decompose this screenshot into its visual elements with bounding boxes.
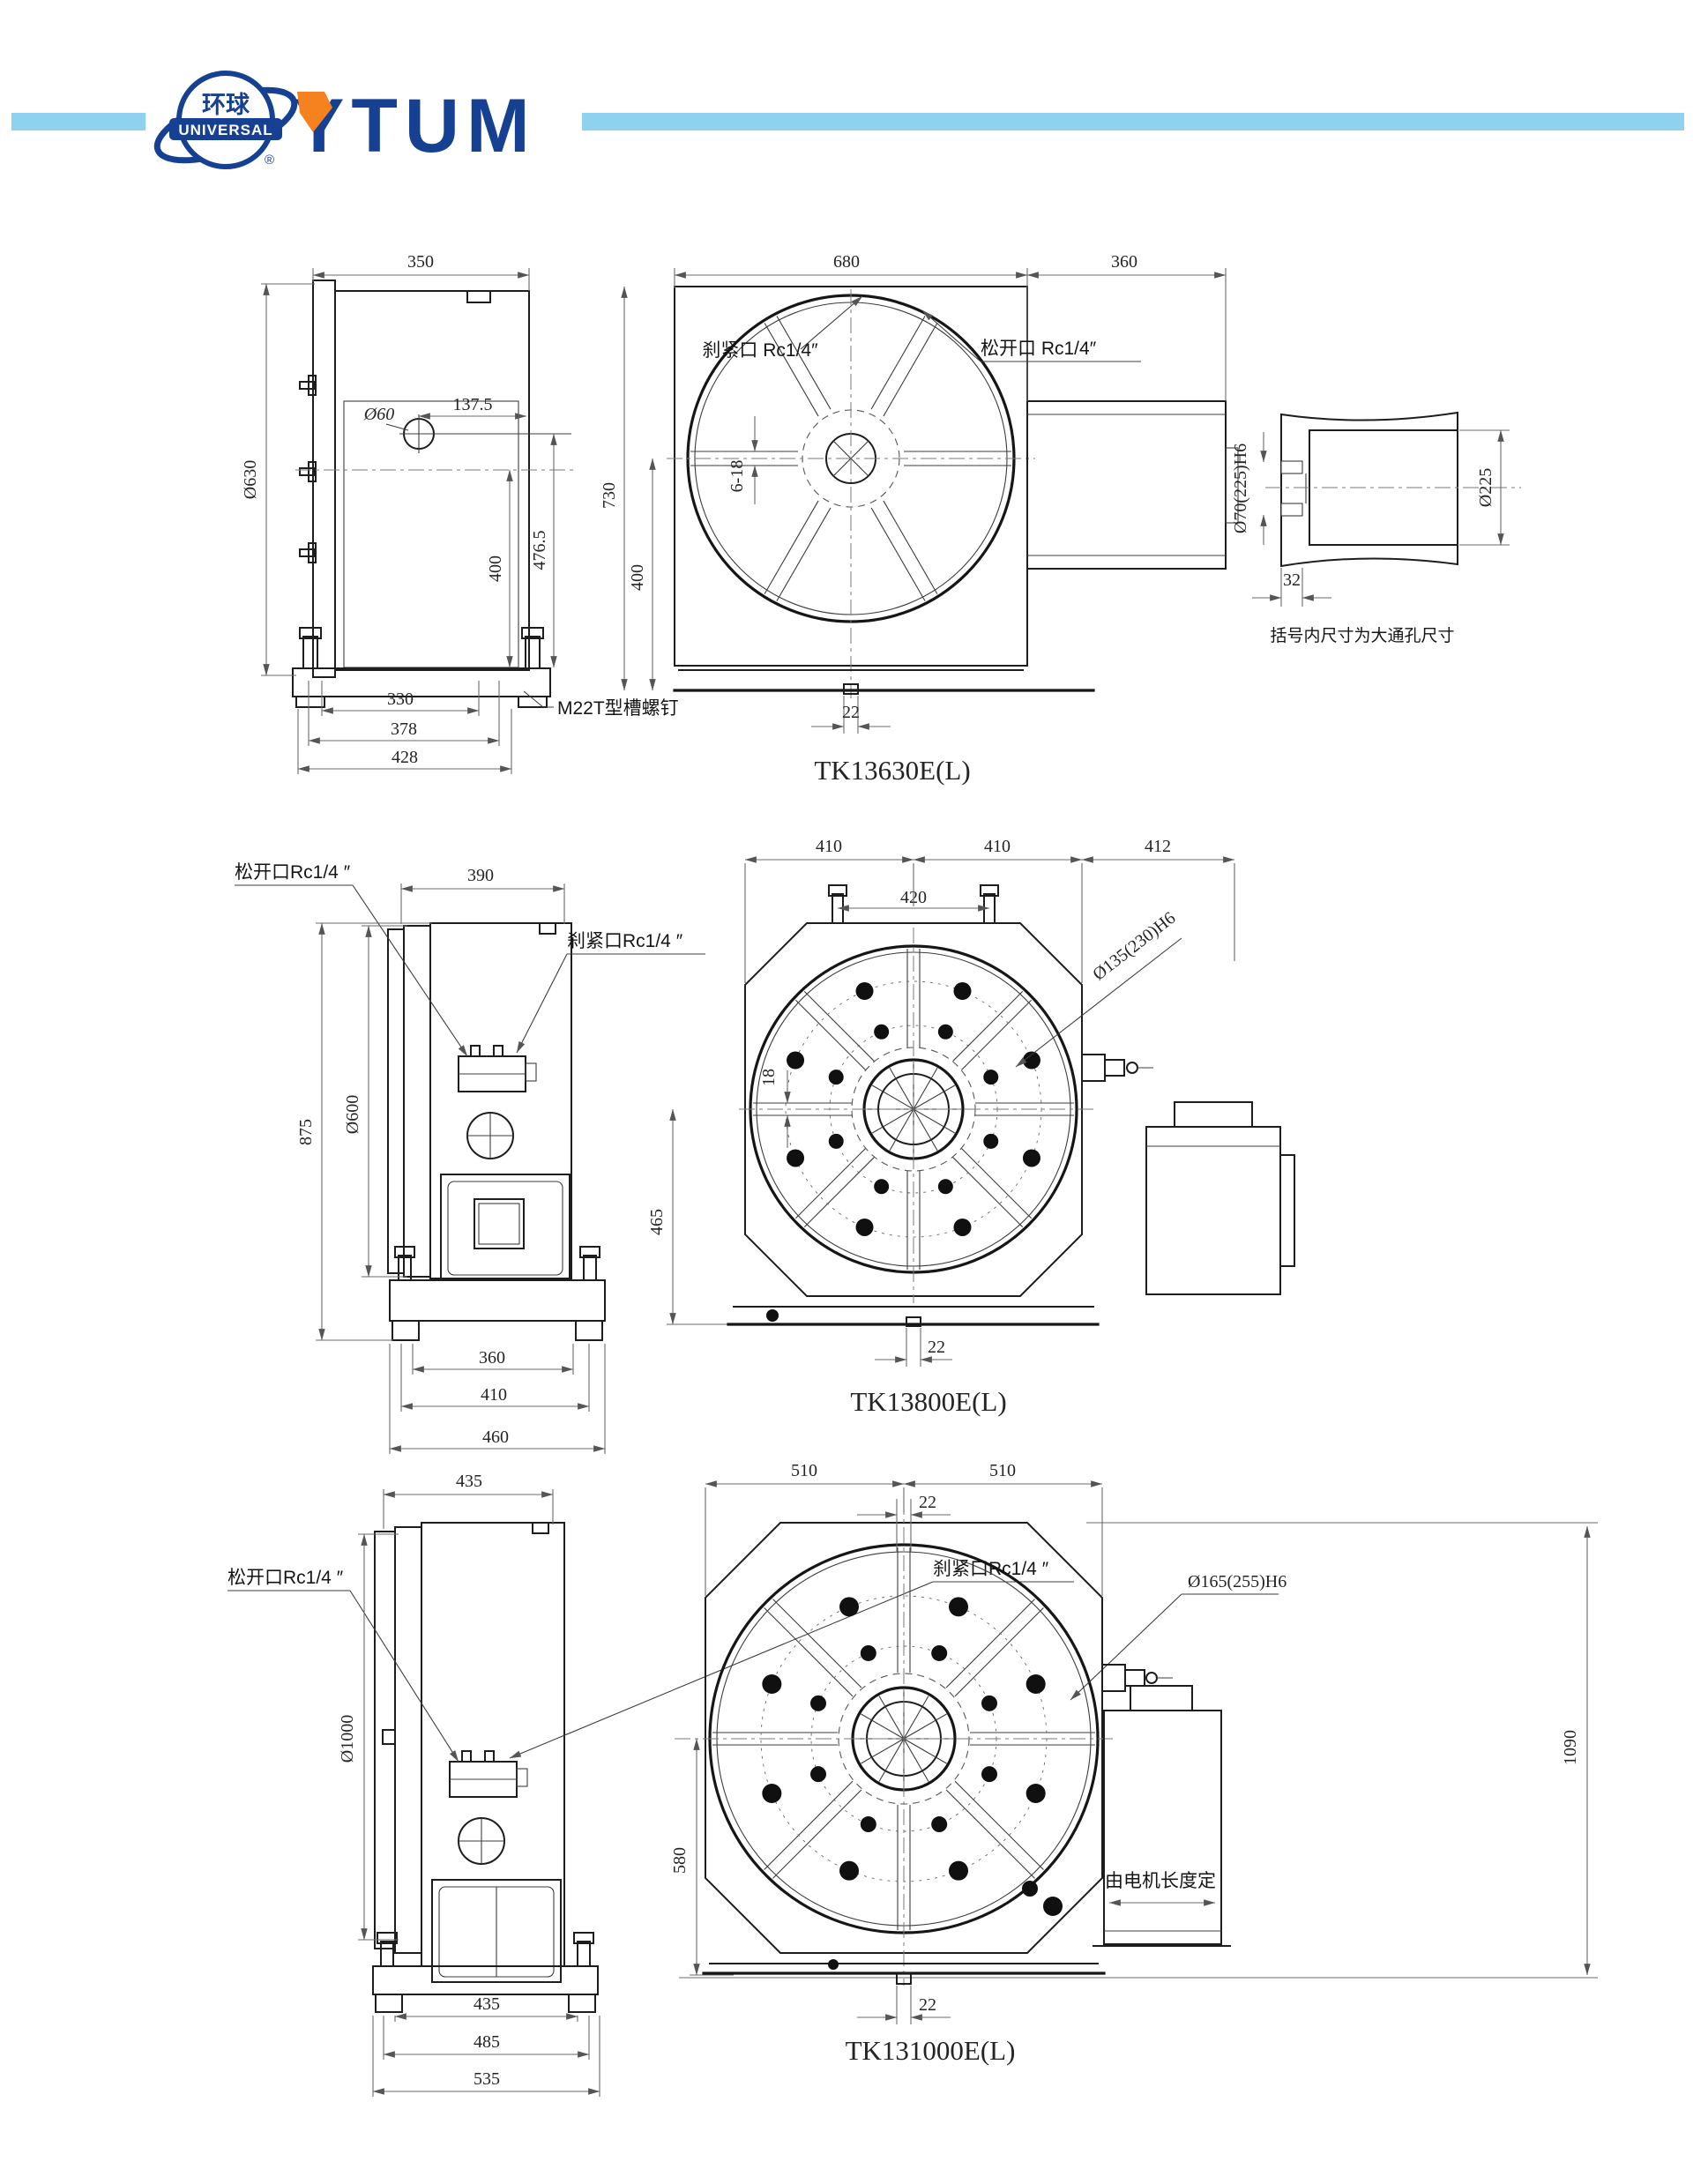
dim-side-h400: 400 — [486, 555, 505, 582]
dim-510b: 510 — [989, 1461, 1016, 1480]
dim-510a: 510 — [791, 1461, 817, 1480]
dim-slot-18: 18 — [759, 1069, 779, 1086]
dim-base-428: 428 — [392, 748, 418, 767]
dim-slot-6-18: 6-18 — [727, 460, 747, 493]
dim-side-390: 390 — [467, 866, 494, 885]
dim-base-435: 435 — [474, 1994, 500, 2014]
dim-base-485: 485 — [474, 2032, 500, 2052]
dim-front-730: 730 — [600, 482, 619, 509]
dim-1090: 1090 — [1561, 1730, 1580, 1765]
drawing-sheet: 环球 UNIVERSAL ® YTUM — [0, 0, 1693, 2184]
dim-580: 580 — [670, 1847, 690, 1874]
dim-front-400: 400 — [628, 564, 647, 591]
tk13630-bore-detail: Ø70(225)H6 Ø225 32 括号内尺寸为大通孔尺寸 — [1231, 413, 1521, 645]
accent-bar-right — [582, 113, 1684, 130]
page-header: 环球 UNIVERSAL ® YTUM — [11, 73, 1684, 175]
dim-side-h476: 476.5 — [530, 531, 549, 570]
dim-key-22-tk13800: 22 — [928, 1338, 945, 1357]
dim-depth-32: 32 — [1283, 570, 1301, 590]
label-clamp-port-3: 刹紧口Rc1/4 ″ — [933, 1559, 1049, 1579]
tk13800-side-view: 390 松开口Rc1/4 ″ 刹紧口Rc1/4 ″ 875 Ø600 360 4… — [235, 862, 705, 1454]
dim-bore-tk13800: Ø135(230)H6 — [1089, 908, 1179, 984]
dim-front-360: 360 — [1111, 252, 1137, 272]
accent-bar-left — [11, 113, 145, 130]
label-motor-length: 由电机长度定 — [1105, 1871, 1216, 1891]
label-release-port-3: 松开口Rc1/4 ″ — [227, 1568, 344, 1588]
dim-side-top-width: 350 — [407, 252, 434, 272]
wordmark-text: YTUM — [294, 84, 537, 168]
dim-410b: 410 — [984, 837, 1011, 856]
dim-412: 412 — [1145, 837, 1171, 856]
dim-side-435: 435 — [456, 1472, 482, 1491]
tk13800-front-view: 420 410 410 412 Ø135(230)H6 18 — [647, 837, 1294, 1417]
universal-globe-logo: 环球 UNIVERSAL ® — [149, 73, 303, 175]
note-parentheses: 括号内尺寸为大通孔尺寸 — [1270, 626, 1454, 645]
registered-mark-icon: ® — [265, 153, 274, 168]
label-hole-dia: Ø60 — [363, 405, 394, 424]
logo-universal-text: UNIVERSAL — [178, 122, 272, 138]
dim-bore-tk131000: Ø165(255)H6 — [1188, 1572, 1287, 1591]
ytum-wordmark: YTUM — [294, 84, 537, 168]
dim-base-330: 330 — [387, 689, 414, 709]
tk131000-front-view: 22 510 510 Ø165(255)H6 由电机长度定 — [670, 1461, 1598, 2066]
model-label-tk13800: TK13800E(L) — [850, 1386, 1006, 1417]
drawing-tk131000: 435 松开口Rc1/4 ″ 刹紧口Rc1/4 ″ Ø1000 435 485 … — [227, 1461, 1598, 2097]
catalog-page: 环球 UNIVERSAL ® YTUM — [0, 0, 1693, 2184]
dim-key-22: 22 — [842, 703, 860, 722]
model-label-tk131000: TK131000E(L) — [846, 2035, 1016, 2066]
label-clamp-port: 刹紧口 Rc1/4″ — [702, 340, 818, 361]
dim-front-680: 680 — [833, 252, 860, 272]
tk13630-front-view: 680 360 730 400 6-18 刹紧口 Rc1/4″ 松开口 Rc1/… — [600, 252, 1238, 786]
drawing-tk13800: 390 松开口Rc1/4 ″ 刹紧口Rc1/4 ″ 875 Ø600 360 4… — [235, 837, 1294, 1454]
dim-465: 465 — [647, 1209, 667, 1235]
dim-base-378: 378 — [391, 719, 417, 739]
label-tslot-screw: M22T型槽螺钉 — [557, 698, 679, 719]
dim-410a: 410 — [816, 837, 842, 856]
dim-side-875: 875 — [296, 1119, 316, 1145]
dim-base-535: 535 — [474, 2069, 500, 2089]
dim-key-top-22: 22 — [919, 1493, 936, 1512]
dim-side-face-600: Ø600 — [343, 1095, 362, 1134]
tk131000-side-view: 435 松开口Rc1/4 ″ 刹紧口Rc1/4 ″ Ø1000 435 485 … — [227, 1472, 1074, 2097]
label-clamp-port-2: 刹紧口Rc1/4 ″ — [567, 931, 683, 951]
tk13630-side-view: 350 Ø630 137.5 Ø60 400 476.5 330 378 428… — [241, 252, 679, 774]
dim-outer-dia: Ø225 — [1476, 468, 1495, 507]
dim-base-460: 460 — [482, 1427, 509, 1447]
dim-bore-dia: Ø70(225)H6 — [1231, 444, 1250, 533]
dim-key-bottom-22: 22 — [919, 1995, 936, 2015]
label-release-port: 松开口 Rc1/4″ — [981, 339, 1097, 359]
logo-chinese-text: 环球 — [202, 92, 250, 118]
label-release-port-2: 松开口Rc1/4 ″ — [235, 862, 351, 883]
drawing-tk13630: 350 Ø630 137.5 Ø60 400 476.5 330 378 428… — [241, 252, 1521, 786]
dim-side-face-1000: Ø1000 — [338, 1715, 357, 1763]
dim-faceplate-dia: Ø630 — [241, 460, 260, 499]
dim-base-360: 360 — [479, 1348, 505, 1368]
dim-base-410: 410 — [481, 1385, 507, 1405]
model-label-tk13630: TK13630E(L) — [814, 755, 970, 786]
dim-hole-offset: 137.5 — [453, 395, 493, 414]
